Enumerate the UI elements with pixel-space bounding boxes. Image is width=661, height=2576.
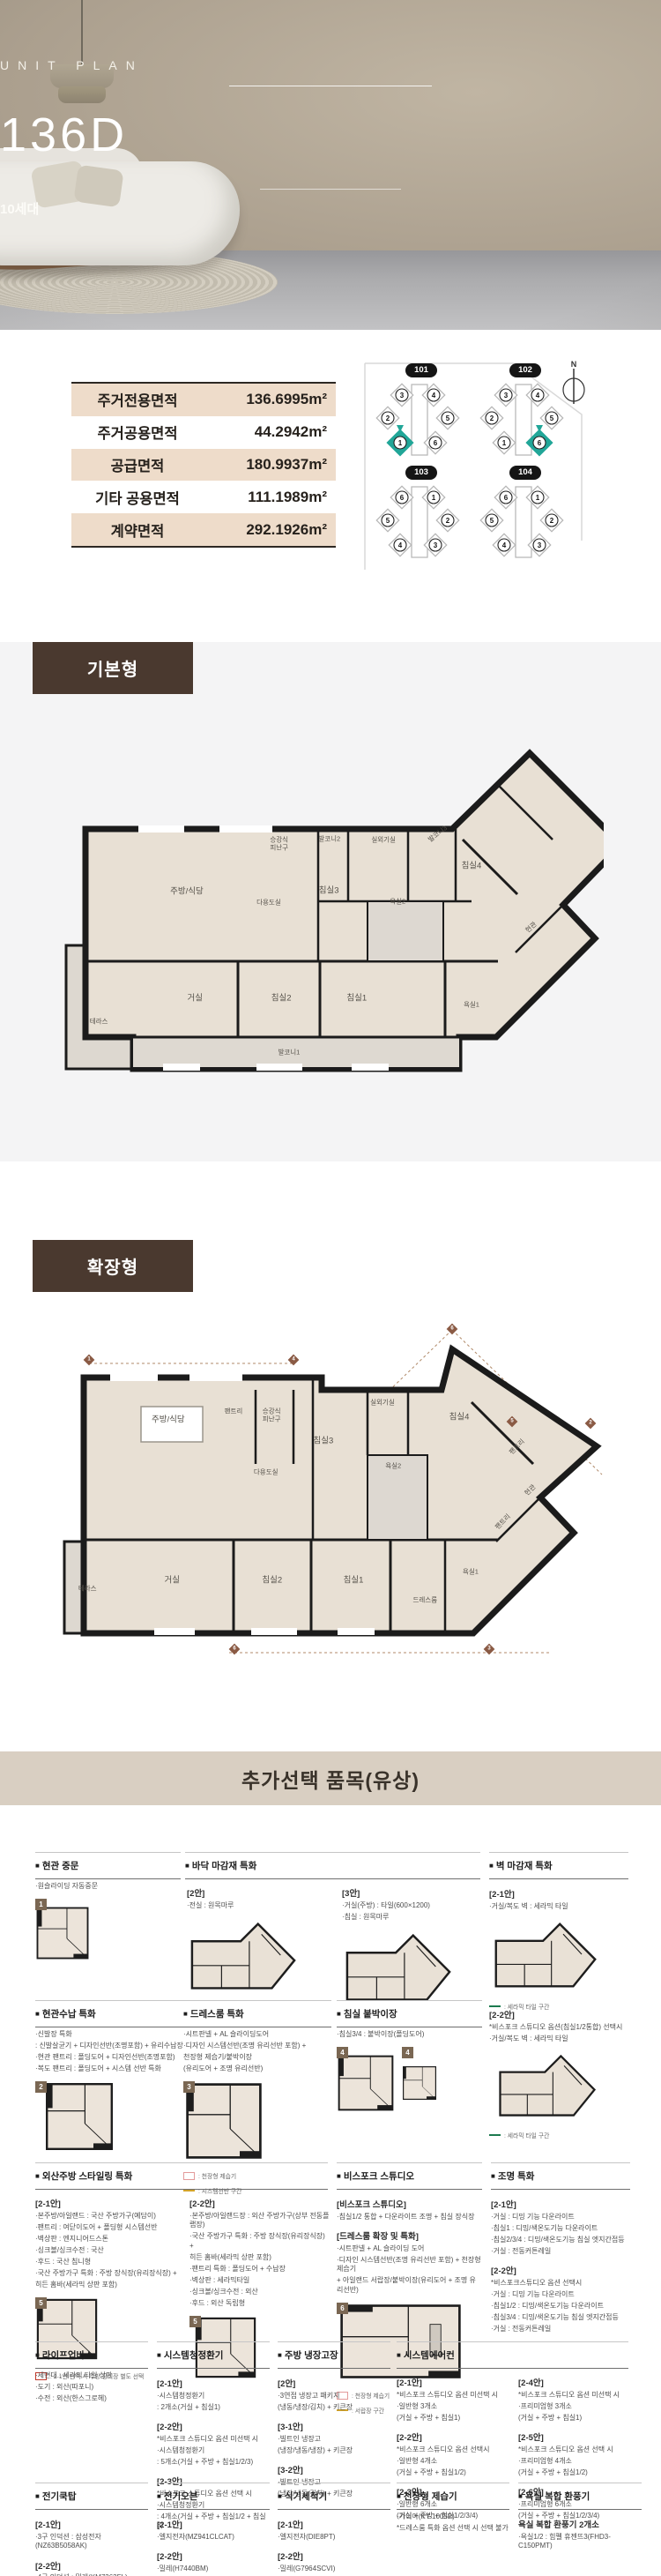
section-square-icon: ■ <box>278 2351 282 2359</box>
option-thumbnail <box>187 1918 300 1998</box>
option-line: ·엘지전자(MZ941CLCAT) <box>157 2533 270 2542</box>
option-variant-label: [2-1안] <box>278 2518 390 2530</box>
section-square-icon: ■ <box>183 2010 188 2018</box>
room-label: 침실3 <box>319 887 339 897</box>
option-line: 히든 홈바(세라믹 상판 포함) <box>35 2281 181 2290</box>
option-heading-text: 식기세척기 <box>285 2491 327 2502</box>
option-line: (거실 + 주방 + 침실1) <box>397 2414 509 2423</box>
unit-name-title: 136D <box>0 108 661 162</box>
building-cluster: 615243 <box>479 480 571 569</box>
detail-thumbnail <box>35 2081 123 2152</box>
option-thumbnails: 3 <box>183 2081 331 2165</box>
dimension-marker: 6 <box>446 1324 457 1335</box>
thumbnail-badge: 4 <box>402 2047 413 2058</box>
option-heading-text: 전기오븐 <box>164 2491 198 2502</box>
option-variant-label: [2-2안] <box>489 2008 630 2020</box>
area-label: 계약면적 <box>71 519 204 541</box>
room-label: 욕실1 <box>464 1002 479 1010</box>
option-thumbnail: 4 <box>337 2047 395 2124</box>
legend-item: : 세라믹 타일 구간 <box>489 2131 630 2139</box>
hero-divider-2 <box>260 189 401 190</box>
option-line: 천장형 제습기/붙박이장 <box>183 2053 331 2063</box>
option-line: ·거실 : 전동커튼레일 <box>491 2325 630 2334</box>
option-heading: ■식기세척기 <box>278 2483 390 2510</box>
option-line: *드레스룸 특화 옵션 선택 시 선택 불가 <box>397 2524 509 2534</box>
area-table-row: 주거전용면적136.6995m² <box>71 384 336 416</box>
svg-text:6: 6 <box>434 439 438 447</box>
option-line: *비스포크 스튜디오 옵션(침실1/2통합) 선택시 <box>489 2023 630 2033</box>
room-label: 실외기실 <box>370 1400 395 1407</box>
option-variant-label: [2-1안] <box>489 1887 628 1900</box>
svg-text:5: 5 <box>446 414 450 422</box>
site-building: 102342516 <box>479 363 571 467</box>
room-label: 욕실2 <box>385 1463 401 1471</box>
building-cluster-icon: 615243 <box>479 480 568 564</box>
option-heading: ■라이프업바스 <box>35 2341 148 2369</box>
option-line: ·일반형 4개소 <box>397 2457 509 2467</box>
option-variant-label: [2안] <box>187 1886 328 1899</box>
basic-floor-plan-drawing <box>57 741 604 1129</box>
svg-text:4: 4 <box>536 392 540 399</box>
dimension-marker: 5 <box>507 1416 518 1428</box>
option-column: ■침실 붙박이장·침실3/4 : 붙박이장(폴딩도어) 4 4 <box>337 2000 482 2124</box>
room-label: 거실 <box>187 995 202 1004</box>
option-variant-label: [2안] <box>278 2377 390 2389</box>
option-thumbnail: 3 <box>183 2081 264 2165</box>
option-line: ·수전 : 외산(한스그로헤) <box>35 2394 148 2404</box>
room-label: 팬트리 <box>225 1408 243 1416</box>
option-line: ·국산 주방가구 특화 : 주방 장식장(유리장식장) + <box>189 2232 330 2251</box>
option-variant-label: [2-4안] <box>518 2376 631 2388</box>
option-line: ·싱크볼/싱크수전 : 국산 <box>35 2246 181 2256</box>
option-heading: ■비스포크 스튜디오 <box>337 2162 482 2190</box>
room-label: 욕실2 <box>390 899 405 907</box>
option-thumbnails <box>489 1919 628 1996</box>
option-heading-text: 현관 중문 <box>42 1861 79 1871</box>
dimension-marker: 2 <box>585 1418 597 1430</box>
hero-eyebrow: UNIT PLAN <box>0 58 661 72</box>
area-value: 44.2942m² <box>204 423 336 441</box>
site-building: 101342516 <box>375 363 467 467</box>
option-line: ·거실 : 디밍 기능 다운라이트 <box>491 2290 630 2300</box>
option-line: *비스포크 스튜디오 옵션 미선택 시 <box>157 2435 270 2445</box>
option-heading: ■드레스룸 특화 <box>183 2000 331 2027</box>
option-line: ·프리미엄형 4개소 <box>518 2457 631 2467</box>
option-variant-label: [2-1안] <box>491 2198 630 2210</box>
option-heading-text: 시스템에어컨 <box>404 2350 455 2361</box>
option-line: *비스포크 스튜디오 옵션 미선택 시 <box>397 2391 509 2401</box>
area-value: 111.1989m² <box>204 489 336 506</box>
section-square-icon: ■ <box>278 2492 282 2500</box>
option-line: : 5개소(거실 + 주방 + 침실1/2/3) <box>157 2458 270 2468</box>
option-line: ·시트판넬 + AL 슬라이딩도어 <box>183 2030 331 2040</box>
svg-text:2: 2 <box>386 414 390 422</box>
svg-text:2: 2 <box>490 414 494 422</box>
building-cluster-icon: 615243 <box>375 480 464 564</box>
option-thumbnails <box>342 1930 476 2010</box>
basic-floor-plan: 주방/식당다용도실침실3욕실2승강식 피난구발코니2실외기실발코니3침실4현관거… <box>57 741 604 1129</box>
option-line: ·팬트리 특화 : 폴딩도어 + 수납장 <box>189 2265 330 2274</box>
section-square-icon: ■ <box>491 2172 495 2180</box>
building-cluster-icon: 342516 <box>375 377 464 462</box>
option-variant-label: [3-2안] <box>278 2463 390 2475</box>
unit-plan-thumbnail <box>342 1930 455 2005</box>
option-line: ·본주방/아일랜드 : 국산 주방가구(예담이) <box>35 2212 181 2221</box>
option-heading-text: 조명 특화 <box>498 2171 535 2182</box>
option-line: + 아일랜드 서랍장/붙박이장(유리도어 + 조명 유리선반) <box>337 2276 482 2295</box>
section-square-icon: ■ <box>337 2172 341 2180</box>
option-line: ·디자인 시스템선반(조명 유리선반 포함) + <box>183 2042 331 2051</box>
svg-text:2: 2 <box>550 517 554 525</box>
option-line: (거실 + 주방 + 침실1/2) <box>397 2468 509 2478</box>
option-line: ·시트판넬 + AL 슬라이딩 도어 <box>337 2244 482 2254</box>
option-column: [2안]·전실 : 원목마루 <box>187 1878 328 1998</box>
option-line: ·밀레(H7440BM) <box>157 2565 270 2574</box>
option-column: ■벽 마감재 특화[2-1안]·거실/복도 벽 : 세라믹 타일 : 세라믹 타… <box>489 1852 628 2011</box>
option-heading-text: 침실 붙박이장 <box>344 2009 397 2020</box>
option-line: ·후드 : 외산 독립형 <box>189 2299 330 2309</box>
thumbnail-badge: 1 <box>35 1899 47 1910</box>
option-line: ·싱크볼/싱크수전 : 외산 <box>189 2288 330 2297</box>
room-label: 승강식 피난구 <box>270 836 288 851</box>
option-column: ■전기쿡탑[2-1안]·3구 인덕션 : 삼성전자(NZ63B5058AK)[2… <box>35 2483 148 2576</box>
building-badge: 102 <box>509 363 541 377</box>
svg-text:3: 3 <box>538 541 542 549</box>
option-heading: ■전기오븐 <box>157 2483 270 2510</box>
north-compass: N <box>559 360 589 409</box>
svg-text:5: 5 <box>490 517 494 525</box>
room-label: 실외기실 <box>371 837 396 845</box>
building-cluster: 342516 <box>479 377 571 467</box>
hero-divider <box>229 86 432 86</box>
option-line: ·프리미엄형 3개소 <box>518 2402 631 2412</box>
room-label: 주방/식당 <box>170 887 204 897</box>
households-badge: 10세대 <box>0 199 661 218</box>
option-line: ·밀레(G7964SCVI) <box>278 2565 390 2574</box>
option-heading-text: 천장형 제습기 <box>404 2491 457 2502</box>
thumbnail-badge: 3 <box>183 2081 195 2093</box>
building-badge: 101 <box>405 363 437 377</box>
building-badge: 103 <box>405 466 437 480</box>
option-heading: ■조명 특화 <box>491 2162 630 2190</box>
option-line: ·팬트리 : 여닫이도어 + 폴딩형 시스템선반 <box>35 2223 181 2233</box>
svg-text:5: 5 <box>550 414 554 422</box>
option-line: ·본주방/아일랜드장 : 외산 주방가구(상부 전동플랩장) <box>189 2212 330 2230</box>
room-label: 다용도실 <box>254 1469 279 1477</box>
option-line: ·침실1 : 디밍/색온도기능 다운라이트 <box>491 2224 630 2234</box>
room-label: 거실 <box>165 1576 180 1586</box>
section-square-icon: ■ <box>35 1862 40 1870</box>
option-variant-label: [2-2안] <box>278 2550 390 2562</box>
section-square-icon: ■ <box>185 1862 189 1870</box>
svg-text:3: 3 <box>400 392 405 399</box>
option-heading-text: 드레스룸 특화 <box>190 2009 244 2020</box>
option-variant-label: [2-1안] <box>157 2518 270 2530</box>
section-square-icon: ■ <box>157 2492 161 2500</box>
option-thumbnails: 2 <box>35 2081 183 2156</box>
option-line: ·가이아(KY-1005P) <box>397 2513 509 2522</box>
option-heading: ■천장형 제습기 <box>397 2483 509 2510</box>
unit-plan-thumbnail <box>187 1918 300 1994</box>
room-label: 다용도실 <box>256 900 281 907</box>
option-line: ·신발장 특화 <box>35 2030 183 2040</box>
option-line: ·시스템청정환기 <box>157 2446 270 2456</box>
extended-floor-plan: 주방/식당팬트리승강식 피난구실외기실침실4침실3욕실2다용도실팬트리현관팬트리… <box>57 1323 626 1667</box>
area-value: 292.1926m² <box>204 521 336 539</box>
option-line: ·도기 : 외산(따포니) <box>35 2383 148 2393</box>
option-heading-text: 주방 냉장고장 <box>285 2350 338 2361</box>
option-variant-label: [2-1안] <box>35 2197 181 2209</box>
option-line: (거실 + 주방 + 침실1/2) <box>518 2468 631 2478</box>
option-thumbnails: 1 <box>35 1899 181 1972</box>
thumbnail-badge: 6 <box>337 2303 348 2314</box>
building-cluster-icon: 342516 <box>479 377 568 462</box>
room-label: 침실2 <box>271 995 292 1004</box>
option-variant-label: [드레스룸 확장 및 특화] <box>337 2229 482 2242</box>
option-column: ■현관 중문·원슬라이딩 자동중문 1 <box>35 1852 181 1972</box>
room-label: 승강식 피난구 <box>263 1407 281 1422</box>
option-thumbnails <box>489 2051 630 2124</box>
option-line: ·침실1/2 : 디밍/색온도기능 다운라이트 <box>491 2302 630 2311</box>
option-line: (냉장/냉동/냉장) + 키큰장 <box>278 2446 390 2456</box>
extended-type-label: 확장형 <box>87 1253 138 1279</box>
svg-text:1: 1 <box>398 439 403 447</box>
option-thumbnail <box>489 2051 605 2124</box>
area-table-row: 기타 공용면적111.1989m² <box>71 481 336 513</box>
option-line: ·국산 주방가구 특화 : 주방 장식장(유리장식장) + <box>35 2269 181 2279</box>
option-line: (거실 + 주방 + 침실1) <box>518 2414 631 2423</box>
section-square-icon: ■ <box>397 2492 401 2500</box>
option-line: *비스포크 스튜디오 옵션 선택 시 <box>518 2445 631 2455</box>
option-line: : 2개소(거실 + 침실1) <box>157 2403 270 2413</box>
option-line: ·침실2/3/4 : 디밍/색온도기능 침실 엣지간접등 <box>491 2236 630 2245</box>
option-variant-label: [2-2안] <box>35 2559 148 2572</box>
section-square-icon: ■ <box>518 2492 523 2500</box>
section-square-icon: ■ <box>35 2492 40 2500</box>
option-thumbnail: 2 <box>35 2081 123 2156</box>
detail-thumbnail <box>183 2081 264 2161</box>
legend: : 세라믹 타일 구간 <box>489 2131 630 2139</box>
option-heading-text: 전기쿡탑 <box>42 2491 77 2502</box>
option-line: ·거실/복도 벽 : 세라믹 타일 <box>489 2035 630 2044</box>
site-building: 103615243 <box>375 466 467 569</box>
option-heading: ■현관 중문 <box>35 1852 181 1879</box>
room-label: 드레스룸 <box>413 1597 438 1605</box>
option-line: ·일반형 3개소 <box>397 2402 509 2412</box>
legend-text: : 세라믹 타일 구간 <box>504 2131 549 2139</box>
thumbnail-badge: 5 <box>35 2297 47 2309</box>
extended-type-badge: 확장형 <box>33 1240 193 1292</box>
area-label: 주거전용면적 <box>71 389 204 410</box>
option-thumbnail <box>342 1930 455 2010</box>
option-variant-label: [3-1안] <box>278 2420 390 2432</box>
option-variant-label: [2-1안] <box>35 2518 148 2530</box>
option-column: ■조명 특화[2-1안]·거실 : 디밍 기능 다운라이트·침실1 : 디밍/색… <box>491 2162 630 2333</box>
option-variant-label: 욕실 복합 환풍기 2개소 <box>518 2518 642 2530</box>
svg-text:4: 4 <box>502 541 507 549</box>
option-variant-label: [비스포크 스튜디오] <box>337 2198 482 2210</box>
option-variant-label: [2-2안] <box>189 2197 330 2209</box>
option-column: [2-2안]*비스포크 스튜디오 옵션(침실1/2통합) 선택시·거실/복도 벽… <box>489 2000 630 2139</box>
option-heading-text: 현관수납 특화 <box>42 2009 96 2020</box>
option-line: ·빌트인 냉장고 <box>278 2435 390 2445</box>
area-value: 136.6995m² <box>204 391 336 408</box>
thumbnail-badge: 5 <box>189 2316 201 2327</box>
option-line: ·시스템청정환기 <box>157 2392 270 2401</box>
svg-text:6: 6 <box>538 439 542 447</box>
option-heading: ■외산주방 스타일링 특화 <box>35 2162 328 2190</box>
building-cluster: 342516 <box>375 377 467 467</box>
option-variant-label: [2-1안] <box>397 2376 509 2388</box>
section-square-icon: ■ <box>35 2351 40 2359</box>
option-thumbnails: 4 4 <box>337 2047 482 2124</box>
svg-text:4: 4 <box>432 392 436 399</box>
svg-text:1: 1 <box>432 494 436 502</box>
option-variant-label: [2-1안] <box>157 2377 270 2389</box>
options-title: 추가선택 품목(유상) <box>241 1764 420 1794</box>
room-label: 발코니1 <box>278 1049 300 1057</box>
option-line: ·거실(주방) : 타일(600×1200) <box>342 1901 476 1911</box>
svg-text:3: 3 <box>434 541 438 549</box>
option-line: ·전실 : 원목마루 <box>187 1901 328 1911</box>
area-label: 기타 공용면적 <box>71 487 204 508</box>
area-value: 180.9937m² <box>204 456 336 474</box>
north-label: N <box>559 360 589 369</box>
room-label: 테라스 <box>78 1586 97 1594</box>
option-line: : 신발살균기 + 디자인선반(조명포함) + 유리수납장 <box>35 2042 183 2051</box>
option-thumbnails <box>187 1918 328 1998</box>
section-square-icon: ■ <box>397 2351 401 2359</box>
option-heading-text: 벽 마감재 특화 <box>496 1861 553 1871</box>
option-heading: ■주방 냉장고장 <box>278 2341 390 2369</box>
option-variant-label: [2-2안] <box>157 2550 270 2562</box>
room-label: 침실4 <box>462 862 482 872</box>
option-heading-text: 바닥 마감재 특화 <box>192 1861 256 1871</box>
option-heading: ■벽 마감재 특화 <box>489 1852 628 1879</box>
option-line: ·거실 : 전동커튼레일 <box>491 2247 630 2257</box>
option-heading-text: 시스템청정환기 <box>164 2350 224 2361</box>
svg-text:6: 6 <box>504 494 509 502</box>
site-plan: 101342516102342516103615243104615243 <box>361 360 587 573</box>
option-line: ·3구 인덕션 : 삼성전자(NZ63B5058AK) <box>35 2533 148 2551</box>
room-label: 주방/식당 <box>152 1416 185 1426</box>
option-variant-label: [2-2안] <box>491 2264 630 2276</box>
room-label: 침실4 <box>449 1414 470 1423</box>
area-table: 주거전용면적136.6995m²주거공용면적44.2942m²공급면적180.9… <box>71 382 336 548</box>
room-label: 침실2 <box>262 1576 282 1586</box>
svg-text:1: 1 <box>502 439 507 447</box>
option-column: ■현관수납 특화·신발장 특화: 신발살균기 + 디자인선반(조명포함) + 유… <box>35 2000 183 2156</box>
option-line: 히든 홈바(세라믹 상판 포함) <box>189 2253 330 2263</box>
option-line: ·욕실1/2 : 힘펠 휴젠뜨3(FHD3-C150PMT) <box>518 2533 642 2551</box>
option-line: ·벽상판 : 세라믹타일 <box>189 2276 330 2286</box>
option-column: ■라이프업바스·세면대 : 세라믹 타일 상판·도기 : 외산(따포니)·수전 … <box>35 2341 148 2403</box>
svg-text:1: 1 <box>536 494 540 502</box>
section-square-icon: ■ <box>489 1862 494 1870</box>
svg-text:4: 4 <box>398 541 403 549</box>
area-label: 주거공용면적 <box>71 422 204 443</box>
option-column: ■천장형 제습기·가이아(KY-1005P)*드레스룸 특화 옵션 선택 시 선… <box>397 2483 509 2533</box>
section-square-icon: ■ <box>35 2172 40 2180</box>
section-square-icon: ■ <box>35 2010 40 2018</box>
basic-type-label: 기본형 <box>87 655 138 681</box>
option-line: ·침실3/4 : 붙박이장(폴딩도어) <box>337 2030 482 2040</box>
option-heading: ■시스템청정환기 <box>157 2341 270 2369</box>
option-line: ·엘지전자(DIE8PT) <box>278 2533 390 2542</box>
svg-text:5: 5 <box>386 517 390 525</box>
thumbnail-badge: 4 <box>337 2047 348 2058</box>
option-line: (유리도어 + 조명 유리선반) <box>183 2065 331 2074</box>
option-line: ·거실/복도 벽 : 세라믹 타일 <box>489 1902 628 1912</box>
option-variant-label: [2-2안] <box>157 2420 270 2432</box>
room-label: 발코니2 <box>318 836 340 844</box>
option-column: ■외산주방 스타일링 특화 <box>35 2162 328 2190</box>
option-line: ·원슬라이딩 자동중문 <box>35 1882 181 1892</box>
option-variant-label: [2-5안] <box>518 2430 631 2443</box>
option-heading-text: 라이프업바스 <box>42 2350 93 2361</box>
option-thumbnail: 4 <box>402 2047 437 2124</box>
option-heading: ■현관수납 특화 <box>35 2000 183 2027</box>
hero-vignette <box>0 0 661 330</box>
svg-text:6: 6 <box>400 494 405 502</box>
section-square-icon: ■ <box>157 2351 161 2359</box>
building-badge: 104 <box>509 466 541 480</box>
area-table-row: 주거공용면적44.2942m² <box>71 416 336 449</box>
option-line: ·복도 팬트리 : 폴딩도어 + 시스템 선반 특화 <box>35 2065 183 2074</box>
option-line: *비스포크 스튜디오 옵션 선택시 <box>397 2445 509 2455</box>
compass-icon <box>561 369 587 406</box>
option-line: ·디자인 시스템선반(조명 유리선반 포함) + 천장형 제습기 <box>337 2256 482 2274</box>
option-heading: ■욕실 복합 환풍기 <box>518 2483 642 2510</box>
unit-plan-page: UNIT PLAN 136D 10세대 주거전용면적136.6995m²주거공용… <box>0 0 661 2576</box>
option-line: ·세면대 : 세라믹 타일 상판 <box>35 2371 148 2381</box>
option-thumbnail <box>489 1919 602 1996</box>
room-label: 테라스 <box>90 1019 108 1027</box>
option-heading-text: 비스포크 스튜디오 <box>344 2171 414 2182</box>
option-line: ·침실3/4 : 디밍/색온도기능 침실 엣지간접등 <box>491 2313 630 2323</box>
svg-text:3: 3 <box>504 392 509 399</box>
option-column: [3안]·거실(주방) : 타일(600×1200)·침실 : 원목마루 <box>342 1878 476 2010</box>
svg-text:2: 2 <box>446 517 450 525</box>
room-label: 욕실1 <box>463 1569 479 1577</box>
hero-photo: UNIT PLAN 136D 10세대 <box>0 0 661 330</box>
site-building: 104615243 <box>479 466 571 569</box>
option-line: ·벽상판 : 엔지니어드스톤 <box>35 2235 181 2244</box>
thumbnail-badge: 2 <box>35 2081 47 2093</box>
section-square-icon: ■ <box>337 2010 341 2018</box>
room-label: 침실1 <box>346 995 367 1004</box>
option-heading-text: 외산주방 스타일링 특화 <box>42 2171 132 2182</box>
basic-type-badge: 기본형 <box>33 642 193 694</box>
option-heading-text: 욕실 복합 환풍기 <box>525 2491 590 2502</box>
option-heading: ■침실 붙박이장 <box>337 2000 482 2027</box>
option-column: ■전기오븐[2-1안]·엘지전자(MZ941CLCAT)[2-2안]·밀레(H7… <box>157 2483 270 2573</box>
option-line: ·침실 : 원목마루 <box>342 1913 476 1923</box>
option-thumbnail: 1 <box>35 1899 90 1972</box>
option-column: ■욕실 복합 환풍기욕실 복합 환풍기 2개소·욕실1/2 : 힘펠 휴젠뜨3(… <box>518 2483 642 2551</box>
option-line: ·현관 팬트리 : 폴딩도어 + 디자인선반(조명포함) <box>35 2053 183 2063</box>
options-title-band: 추가선택 품목(유상) <box>0 1751 661 1805</box>
room-label: 침실3 <box>313 1437 333 1446</box>
room-label: 침실1 <box>344 1576 364 1586</box>
unit-plan-thumbnail <box>489 2051 605 2120</box>
option-heading: ■전기쿡탑 <box>35 2483 148 2510</box>
option-line: (냉동/냉장/김치) + 키큰장 <box>278 2403 390 2413</box>
option-line: ·3연접 냉장고 패키지 <box>278 2392 390 2401</box>
option-variant-label: [2-2안] <box>397 2430 509 2443</box>
option-column: ■시스템에어컨 <box>397 2341 628 2369</box>
option-line: ·거실 : 디밍 기능 다운라이트 <box>491 2213 630 2222</box>
